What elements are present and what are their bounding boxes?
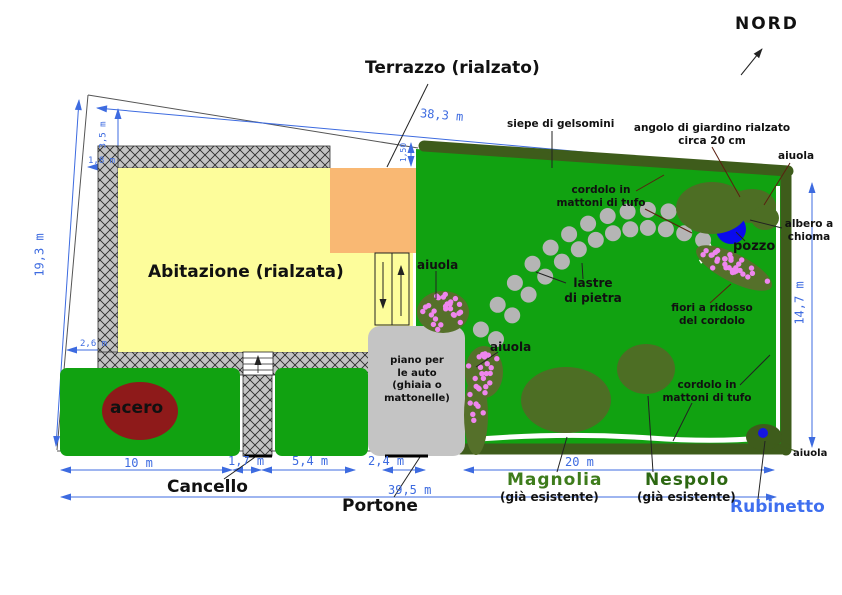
flower [710, 265, 715, 270]
flower [709, 253, 714, 258]
dim-gate: 1,7 m [228, 454, 264, 468]
stone [525, 256, 541, 272]
flower [477, 354, 482, 359]
stone [661, 203, 677, 219]
stone [473, 322, 489, 338]
flower [423, 304, 428, 309]
flower [483, 384, 488, 389]
flower [765, 279, 770, 284]
flower [481, 410, 486, 415]
flower [473, 376, 478, 381]
terrace-title: Terrazzo (rialzato) [365, 58, 540, 79]
dim-left: 19,3 m [33, 233, 47, 276]
flower [749, 265, 754, 270]
terrace-stairs [375, 253, 409, 325]
dim-garden-width: 20 m [565, 455, 594, 469]
flower [466, 363, 471, 368]
flower [457, 302, 462, 307]
stone [507, 275, 523, 291]
flower [452, 313, 457, 318]
aiuola-carport-label: aiuola [490, 340, 531, 355]
flower [429, 312, 434, 317]
flower [722, 256, 727, 261]
stone [640, 220, 656, 236]
nespolo-sub-label: (già esistente) [637, 490, 736, 505]
stone [521, 287, 537, 303]
magnolia-tree [521, 367, 611, 433]
dim-hedge-left: 10 m [124, 456, 153, 470]
flower [447, 301, 452, 306]
stone [588, 232, 604, 248]
flower [467, 392, 472, 397]
flower [470, 412, 475, 417]
flower [750, 271, 755, 276]
flower [489, 365, 494, 370]
dim-right: 14,7 m [793, 281, 807, 324]
dim-house-top: 3,5 m [99, 121, 109, 148]
flower [730, 270, 735, 275]
dim-house-bottom: 2,6 m [80, 339, 107, 349]
flower [733, 265, 738, 270]
carport-label: piano per le auto (ghiaia o mattonelle) [372, 355, 462, 405]
flower [726, 265, 731, 270]
tap-dot [758, 428, 768, 438]
entry-stairs [243, 352, 273, 375]
flower [468, 400, 473, 405]
canopy-tree-label: albero a chioma [782, 218, 836, 244]
stone [537, 269, 553, 285]
north-label: NORD [735, 14, 799, 35]
flower [471, 418, 476, 423]
flower [434, 293, 439, 298]
flower [745, 274, 750, 279]
flower [458, 320, 463, 325]
flower [435, 327, 440, 332]
stone [571, 241, 587, 257]
plan-drawing [0, 0, 842, 595]
flower [476, 386, 481, 391]
flower [431, 322, 436, 327]
raised-corner-label: angolo di giardino rialzato circa 20 cm [632, 122, 792, 148]
stone [580, 216, 596, 232]
magnolia-sub-label: (già esistente) [500, 490, 599, 505]
gate-label: Cancello [167, 477, 248, 498]
stone [622, 221, 638, 237]
stone [600, 208, 616, 224]
stone [490, 297, 506, 313]
tap-label: Rubinetto [730, 497, 825, 518]
flower [456, 311, 461, 316]
flower [475, 404, 480, 409]
flower [433, 316, 438, 321]
flower [714, 259, 719, 264]
stone-slabs-label: lastre di pietra [552, 276, 634, 306]
jasmine-hedge-label: siepe di gelsomini [507, 118, 614, 131]
flower [485, 361, 490, 366]
stone [543, 240, 559, 256]
maple-label: acero [110, 398, 163, 419]
flower [727, 252, 732, 257]
aiuola-terrace-label: aiuola [417, 258, 458, 273]
north-arrow [741, 49, 762, 75]
aiuola-top-right-label: aiuola [778, 150, 814, 163]
front-hedges [60, 368, 368, 456]
flowers-curb-label: fiori a ridosso del cordolo [652, 302, 772, 328]
stone [504, 307, 520, 323]
stone [658, 221, 674, 237]
flower [443, 292, 448, 297]
stone [605, 225, 621, 241]
stone [561, 226, 577, 242]
aiuola-bottom-right-label: aiuola [793, 448, 827, 461]
flower [482, 351, 487, 356]
flower [494, 356, 499, 361]
dim-terrace-side: 1,50 [399, 143, 408, 162]
flower [481, 376, 486, 381]
flower [487, 380, 492, 385]
flower [479, 371, 484, 376]
well-label: pozzo [733, 239, 775, 255]
canopy-tree [676, 182, 748, 234]
dim-hedge-mid: 5,4 m [292, 454, 328, 468]
magnolia-label: Magnolia [507, 470, 602, 491]
dim-house-left: 1,8 m [88, 156, 115, 166]
flower [448, 306, 453, 311]
flower [438, 322, 443, 327]
dim-portone: 2,4 m [368, 454, 404, 468]
house-label: Abitazione (rialzata) [148, 262, 344, 283]
flower [453, 296, 458, 301]
flower [482, 390, 487, 395]
nespolo-label: Nespolo [645, 470, 729, 491]
main-door-label: Portone [342, 496, 418, 517]
curb-top-label: cordolo in mattoni di tufo [551, 184, 651, 210]
flower [728, 258, 733, 263]
flower [703, 248, 708, 253]
gate-path [243, 375, 272, 456]
curb-bottom-label: cordolo in mattoni di tufo [647, 379, 767, 405]
flower [722, 262, 727, 267]
stone [554, 254, 570, 270]
dim-total-bottom: 39,5 m [388, 483, 431, 497]
garden-plan: NORD Terrazzo (rialzato) Abitazione (ria… [0, 0, 842, 595]
terrace-area [330, 168, 416, 253]
